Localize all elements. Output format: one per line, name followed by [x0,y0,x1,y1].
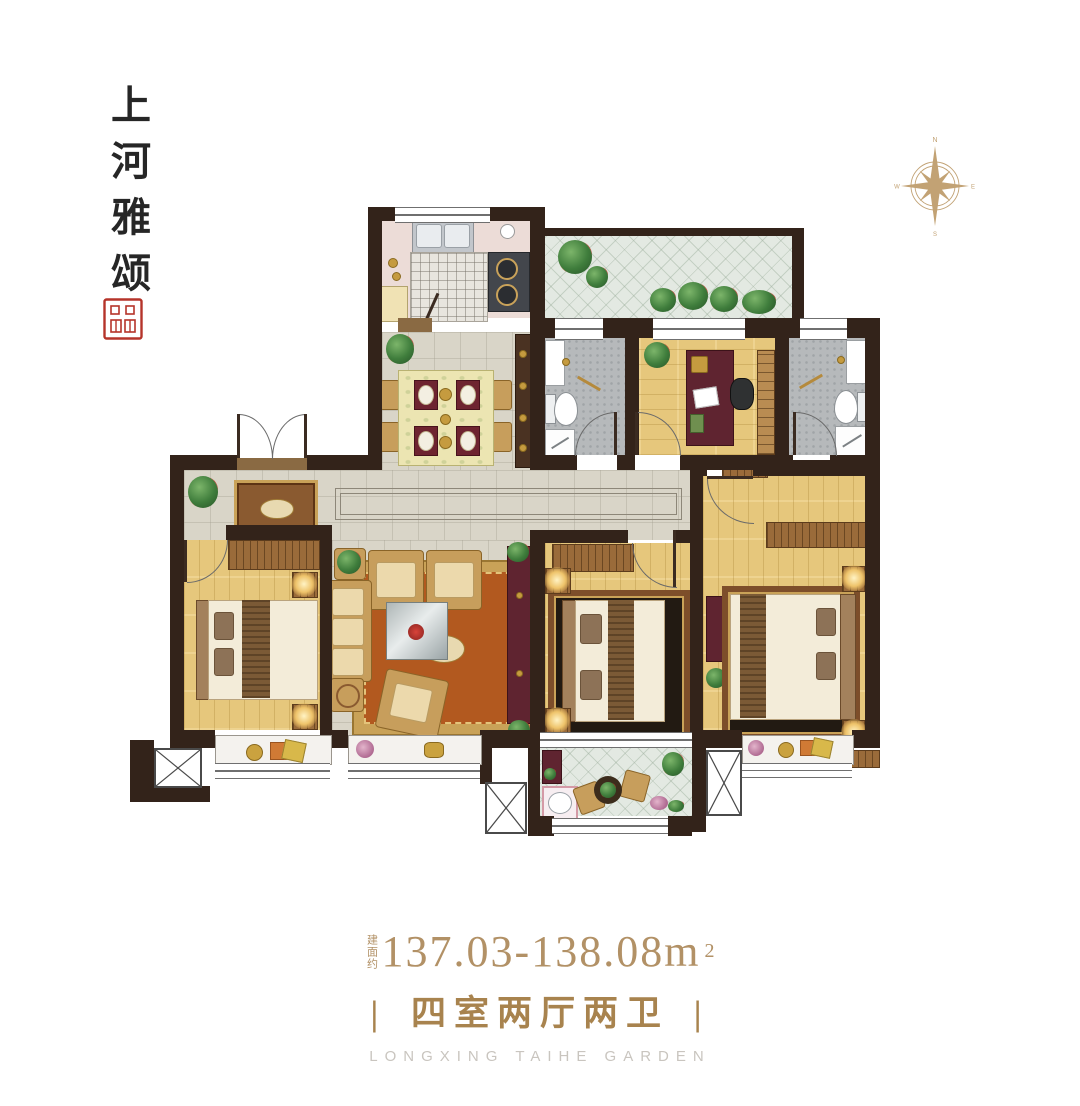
area-line: 建面约 137.03-138.08m 2 [0,926,1080,977]
books-icon [270,742,296,760]
door-leaf [673,530,676,587]
cabinet-knob [516,670,523,677]
door-leaf [614,412,617,455]
desk-chair [730,378,754,410]
kitchen-threshold [398,318,432,332]
wall [170,455,184,748]
tagline-bar-left: | [363,994,395,1033]
study-shelf [757,350,775,455]
wall [753,460,865,476]
wall [480,730,540,748]
place-setting [456,380,480,410]
dining-chair [380,422,400,452]
toilet-icon [834,390,858,424]
door-leaf [707,476,753,479]
cabinet-light [519,382,527,390]
window-bench [850,750,880,768]
faucet-icon [562,358,570,366]
serving-dish [439,388,452,401]
tv-cabinet [507,546,532,724]
sink-basin [444,224,470,248]
bed-headboard [840,594,856,720]
wall [852,730,880,748]
floorplan-poster: 上河雅颂 N E S W [0,0,1080,1106]
bay-window [215,763,330,779]
area-prefix: 建面约 [366,934,378,970]
flower-icon [650,796,668,810]
wall [530,455,577,470]
plant-icon [386,334,414,364]
lamp-glow [291,703,317,729]
wall [676,530,690,543]
shrub-icon [650,288,676,312]
area-superscript: 2 [704,940,714,963]
wall [530,530,545,748]
bath2-vanity [846,340,867,384]
corridor-ceiling-detail [335,488,682,520]
kitchen-window [395,207,490,223]
plant-icon [188,476,218,508]
armchair-cushion [376,562,416,598]
wall [130,786,210,802]
kitchen-prep-bowl [500,224,515,239]
plant-icon [662,752,684,776]
dining-chair [492,422,512,452]
place-setting [414,426,438,456]
wall [545,530,628,543]
wall [690,460,707,476]
plant-icon [337,550,361,574]
shower-icon [545,429,575,456]
floorplan [130,200,880,848]
door-leaf [793,412,796,455]
wall [865,318,880,748]
cabinet-light [519,414,527,422]
wall [226,525,320,540]
cabinet-light [519,350,527,358]
bath1-window [555,318,603,340]
ac-platform [154,748,202,788]
tagline-bar-right: | [686,994,718,1033]
bay-window [742,763,852,778]
tagline-text: 四室两厅两卫 [411,994,669,1033]
flower-icon [356,740,374,758]
compass-east-label: E [971,185,975,191]
area-value: 137.03-138.08m [382,926,701,977]
ornament [424,742,444,758]
dining-chair [492,380,512,410]
compass-south-label: S [933,232,937,238]
ac-platform [485,782,527,834]
ac-platform [706,750,742,816]
wall [545,228,804,236]
compass-west-label: W [894,185,900,191]
pillow [816,652,836,680]
pillow [214,648,234,676]
sofa-cushion [332,618,364,646]
table-flowers [408,624,424,640]
bed-runner [242,600,270,698]
books-icon [800,740,824,756]
lamp-glow [544,707,570,733]
wall [368,207,382,470]
wall [690,476,703,748]
wall [775,338,789,455]
entry-door-leaf [237,414,240,458]
stove-burner [496,284,518,306]
lamp-glow [291,571,317,597]
place-setting [456,426,480,456]
plant-icon [668,800,684,812]
cabinet-light [519,444,527,452]
plant-icon [586,266,608,288]
tagline-line: | 四室两厅两卫 | [0,985,1080,1036]
entry-threshold [237,458,307,470]
wall [170,730,215,748]
kitchen-tile-area [410,252,488,322]
wardrobe [228,540,320,570]
sink-basin [416,224,442,248]
wall [692,748,706,832]
plant-icon [544,768,556,780]
place-setting [414,380,438,410]
balcony-slider-window [540,732,692,748]
bed-runner [608,600,634,720]
faucet-icon [837,356,845,364]
armchair-cushion [434,562,474,598]
desk-pad [690,414,704,433]
pillow [816,608,836,636]
kitchen-jar [392,272,401,281]
shrub-icon [678,282,708,310]
wardrobe [766,522,867,548]
lamp-glow [544,567,570,593]
serving-dish [439,436,452,449]
sofa-cushion [332,588,364,616]
toilet-icon [554,392,578,426]
side-table-ornament [336,684,360,708]
plant-icon [507,542,529,562]
shower-icon [835,426,867,456]
wall [307,455,382,470]
plant-icon [644,342,670,368]
desk-lamp [691,356,708,373]
garden-name: LONGXING TAIHE GARDEN [0,1048,1080,1065]
wall [528,816,554,836]
pillow [214,612,234,640]
desk-papers [693,386,720,409]
wall [668,816,692,836]
bed-runner [740,594,766,718]
cookie-plate [778,742,794,758]
door-leaf [635,412,638,455]
plant-icon [558,240,592,274]
serving-dish [440,414,451,425]
wall [617,455,635,470]
study-window [653,318,745,340]
balcony-window [552,818,668,834]
cookie-plate [246,744,263,761]
compass-north-label: N [932,137,937,144]
flower-icon [748,740,764,756]
dresser [706,596,723,662]
wall [320,525,332,748]
stove-burner [496,258,518,280]
cabinet-knob [516,592,523,599]
bath2-window [800,318,847,340]
plant-icon [600,782,616,798]
shrub-icon [742,290,776,314]
bay-window [348,763,480,779]
entry-door-arc [272,414,306,459]
dining-chair [380,380,400,410]
compass-icon: N E S W [893,134,977,238]
door-leaf [184,540,187,582]
footer: 建面约 137.03-138.08m 2 | 四室两厅两卫 | LONGXING… [0,926,1080,1065]
pillow [580,614,602,644]
kitchen-jar [388,258,398,268]
entry-door-leaf [304,414,307,458]
wall [692,730,742,748]
sofa-cushion [332,648,364,676]
wall [792,228,804,320]
shrub-icon [710,286,738,312]
pillow [580,670,602,700]
wall [530,207,545,470]
lamp-glow [841,565,867,591]
entry-door-arc [239,414,273,459]
